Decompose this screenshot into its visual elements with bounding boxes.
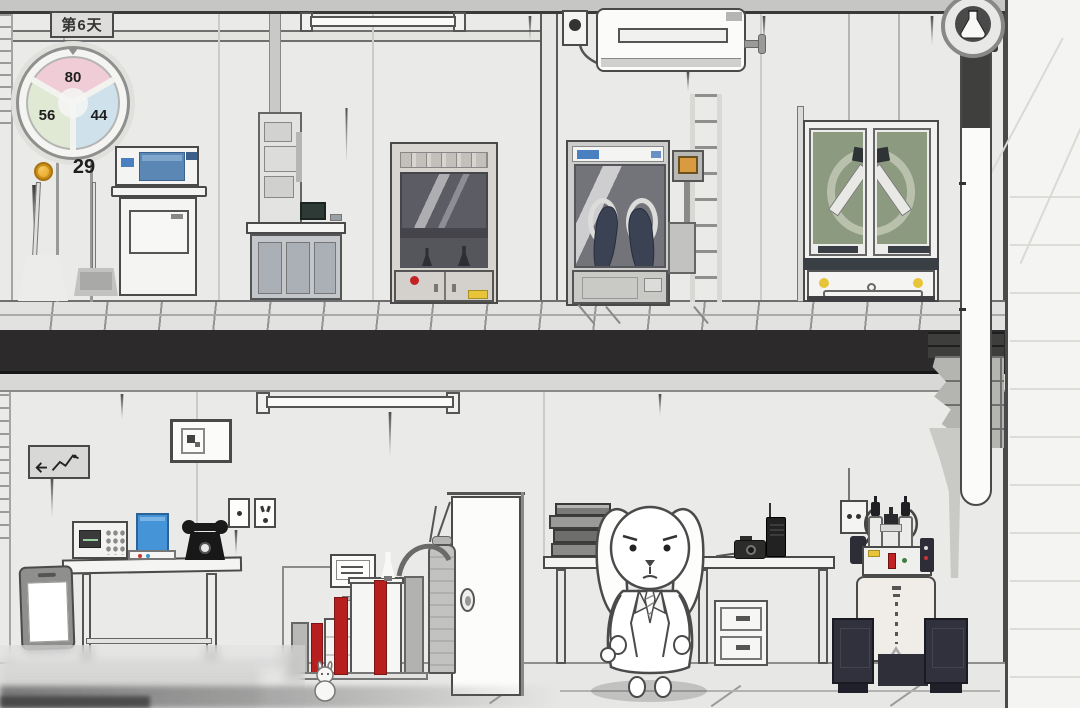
speaker-face [932, 628, 964, 668]
flask-emblem [938, 0, 1008, 64]
exterior-siding-lines [1010, 150, 1080, 708]
module-dot [924, 556, 928, 560]
plug [569, 19, 581, 31]
wall-crack [345, 108, 348, 164]
wall-seam [372, 14, 374, 300]
analyzer-module [264, 122, 292, 142]
warning-sticker [468, 290, 488, 299]
fume-hood[interactable] [390, 142, 498, 304]
oscilloscope-screen [79, 530, 101, 548]
drum-hub [852, 147, 863, 164]
upper-floor-line [0, 314, 1005, 316]
bench-panel [314, 242, 336, 294]
fume-hood-vents [400, 152, 488, 168]
gauge-pointer [67, 47, 79, 55]
warning-sticker [868, 550, 880, 557]
cabinet-handle [434, 284, 438, 292]
oscilloscope[interactable] [72, 521, 128, 559]
left-door-glass [813, 132, 863, 244]
cabinet-divider [444, 272, 446, 300]
synth-bottle-nozzle [904, 496, 907, 503]
analyzer-module [264, 176, 294, 198]
door-handle [888, 246, 930, 253]
camera-lens [746, 545, 756, 555]
speaker[interactable] [832, 618, 874, 684]
wall-seam [543, 392, 545, 562]
synth-bottle-cap [871, 502, 880, 516]
indicator-dot [913, 278, 923, 288]
phone-dial [199, 542, 211, 554]
radio[interactable] [766, 517, 786, 557]
gauge-left-value: 56 [27, 107, 67, 124]
socket-slot [266, 506, 271, 513]
level-pipe[interactable] [960, 44, 992, 506]
panel-screen [678, 156, 698, 174]
synth-module [920, 538, 934, 572]
exit-sign-diagram [32, 449, 86, 475]
dustpan-face [80, 272, 112, 290]
workbench-leg [556, 569, 566, 664]
scope-trace [83, 539, 98, 541]
beaker[interactable] [381, 552, 395, 578]
desk-crossbar [86, 638, 212, 644]
radio-lines [770, 524, 784, 536]
synth-disc [880, 524, 902, 532]
wall-crack [686, 72, 690, 92]
vent-line [898, 14, 900, 120]
socket-hole [237, 511, 242, 516]
power-socket-panel[interactable] [228, 496, 278, 532]
analyzer-module [264, 146, 298, 172]
synth-bottle [898, 516, 913, 550]
corner-line [9, 392, 11, 662]
lower-ceiling [0, 374, 1005, 392]
glovebox-chip [651, 151, 661, 158]
cabinet-bottom-strip [807, 296, 935, 302]
socket-left [228, 498, 250, 528]
synth-bottle [868, 516, 883, 550]
bench-item [330, 214, 342, 221]
glovebox-header [572, 146, 664, 162]
synth-base [878, 654, 928, 686]
speaker-foot [930, 684, 962, 693]
floor-slab [0, 330, 1005, 374]
ceiling-lamp-tube [266, 396, 454, 408]
drawer[interactable] [720, 636, 762, 660]
wall-crack [120, 394, 124, 420]
coin-icon [34, 162, 53, 181]
bench-top [246, 222, 346, 234]
base-panel [582, 277, 638, 299]
door-lintel [447, 492, 525, 495]
printer[interactable] [115, 146, 199, 186]
red-vial [888, 553, 896, 569]
analyzer-column[interactable] [258, 112, 302, 224]
corner-hatch [0, 14, 11, 134]
workbench-leg [818, 569, 828, 664]
door-knob[interactable] [460, 588, 475, 612]
socket-hole [263, 518, 268, 523]
pipe-tick [959, 308, 966, 311]
fume-hood-lower [400, 238, 488, 268]
flask-silhouette [422, 248, 432, 266]
door-jamb [521, 492, 524, 696]
printer-screen [139, 152, 185, 181]
gauge-top-value: 80 [19, 69, 127, 86]
drum-hub [877, 147, 890, 164]
dock-dot [138, 554, 142, 558]
tablet[interactable] [19, 565, 76, 651]
dustpan-handle [92, 182, 96, 270]
status-gauge[interactable]: 80 56 44 [16, 46, 130, 160]
coin-count: 29 [62, 156, 106, 179]
game-scene: 第6天 80 56 44 29 [0, 0, 1080, 708]
bench-panel [258, 242, 282, 294]
window-reflection [402, 174, 486, 228]
wall-socket[interactable] [562, 10, 588, 46]
upper-ceiling [0, 0, 1005, 14]
wall-crack [848, 468, 850, 502]
frame-glyph [195, 442, 200, 447]
right-door-glass [877, 132, 927, 244]
picture-frame[interactable] [170, 419, 232, 463]
wall-crack [388, 412, 392, 458]
socket-slot [260, 506, 265, 513]
ac-corner [726, 12, 742, 21]
ceiling-lamp-tube [310, 16, 456, 27]
exit-sign[interactable] [28, 445, 90, 479]
fume-hood-cabinet[interactable] [394, 270, 494, 302]
screen-lines [341, 566, 363, 576]
rotary-phone[interactable] [182, 520, 228, 560]
oscilloscope-buttons [105, 529, 125, 555]
cabinet-handle [171, 214, 183, 219]
drawer-handle [736, 645, 750, 650]
wall-crack [930, 16, 934, 46]
day-label: 第6天 [61, 14, 102, 35]
terminal-strip [140, 517, 165, 521]
dock-dot [146, 554, 150, 558]
beaker-cap [384, 576, 392, 581]
socket-right [254, 498, 276, 528]
printer-screen-strip [142, 155, 182, 161]
glovebox[interactable] [566, 140, 670, 306]
rack-bar-red [374, 580, 387, 675]
wall-crack [50, 478, 54, 518]
wall-seam [760, 14, 762, 300]
base-plate [644, 278, 662, 292]
synth-shaft [889, 507, 893, 515]
hazard-dot [410, 276, 419, 285]
ceiling-pipe [269, 14, 281, 114]
glovebox-window [574, 164, 666, 268]
ac-bottom-strip [601, 58, 741, 67]
panel-stem [684, 182, 690, 222]
bench-monitor[interactable] [300, 202, 326, 220]
bench-body[interactable] [250, 234, 342, 300]
analyzer-tube [296, 132, 302, 182]
tablet-slot [38, 573, 56, 578]
door-handle [818, 246, 858, 253]
air-conditioner[interactable] [596, 8, 746, 72]
cabinet-mid-band [803, 258, 939, 270]
speaker[interactable] [924, 618, 968, 684]
rack-base-plate [286, 672, 428, 680]
module-dot [924, 546, 928, 550]
hose [395, 532, 455, 580]
frame-glyph [187, 435, 195, 443]
wire-line [282, 566, 332, 568]
printer-stand-top [111, 186, 207, 197]
wall-seam [218, 14, 220, 300]
printer-label [121, 158, 134, 167]
synth-bottle-nozzle [874, 496, 877, 503]
gauge-right-value: 44 [79, 107, 119, 124]
handset-bar [186, 523, 224, 531]
drawer[interactable] [720, 607, 762, 631]
terminal-dock [128, 550, 176, 560]
speaker-face [840, 628, 870, 668]
flask-silhouette [458, 246, 470, 266]
speaker-foot [838, 684, 868, 693]
rack-column-gray [404, 576, 424, 675]
vent-line [848, 14, 850, 120]
divider-wall [540, 14, 558, 332]
corner-line [11, 14, 13, 302]
mini-rabbit-figurine[interactable] [310, 658, 340, 702]
glovebox-label [577, 150, 599, 159]
rabbit-scientist[interactable] [585, 495, 715, 705]
body-mark [892, 586, 901, 590]
fume-hood-window [400, 172, 488, 230]
knob-center [465, 596, 471, 606]
body-mark [893, 594, 900, 597]
green-dot [902, 558, 907, 563]
ac-vent [618, 28, 728, 43]
broom[interactable] [18, 255, 68, 301]
pipe-tick [959, 182, 966, 185]
ac-pipe-elbow [758, 34, 766, 54]
tablet-screen [27, 581, 69, 642]
drawer-handle [736, 616, 750, 621]
synth-motor [884, 514, 898, 524]
wall-crack [658, 394, 662, 416]
cabinet-handle [452, 284, 456, 292]
blur-smear-corner [0, 696, 150, 708]
drawer-cabinet[interactable] [714, 600, 768, 666]
printer-cabinet[interactable] [119, 197, 197, 296]
dustpan[interactable] [74, 268, 118, 296]
panel-box [668, 222, 696, 274]
synth-bottle-cap [901, 502, 910, 516]
bench-panel [286, 242, 310, 294]
glovebox-panel[interactable] [672, 150, 704, 182]
printer-chip [186, 152, 197, 160]
day-sign: 第6天 [50, 11, 114, 38]
body-dotted-line [895, 602, 898, 644]
glovebox-base [572, 270, 668, 304]
wall-crack [234, 530, 238, 556]
indicator-dot [819, 278, 829, 288]
fume-hood-sash [400, 230, 488, 238]
camera[interactable] [734, 540, 766, 559]
